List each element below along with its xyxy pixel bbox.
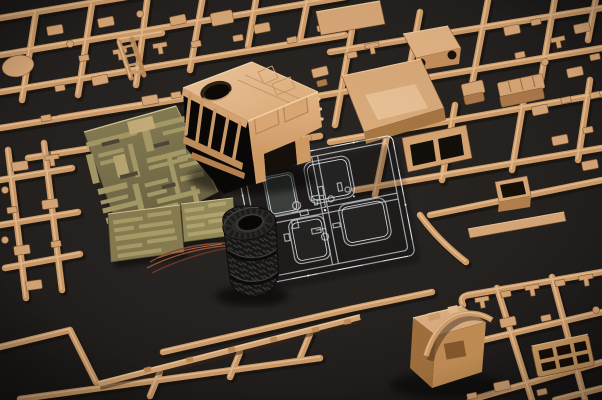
scene-svg	[0, 0, 602, 400]
photo-canvas	[0, 0, 602, 400]
vignette	[0, 0, 602, 400]
